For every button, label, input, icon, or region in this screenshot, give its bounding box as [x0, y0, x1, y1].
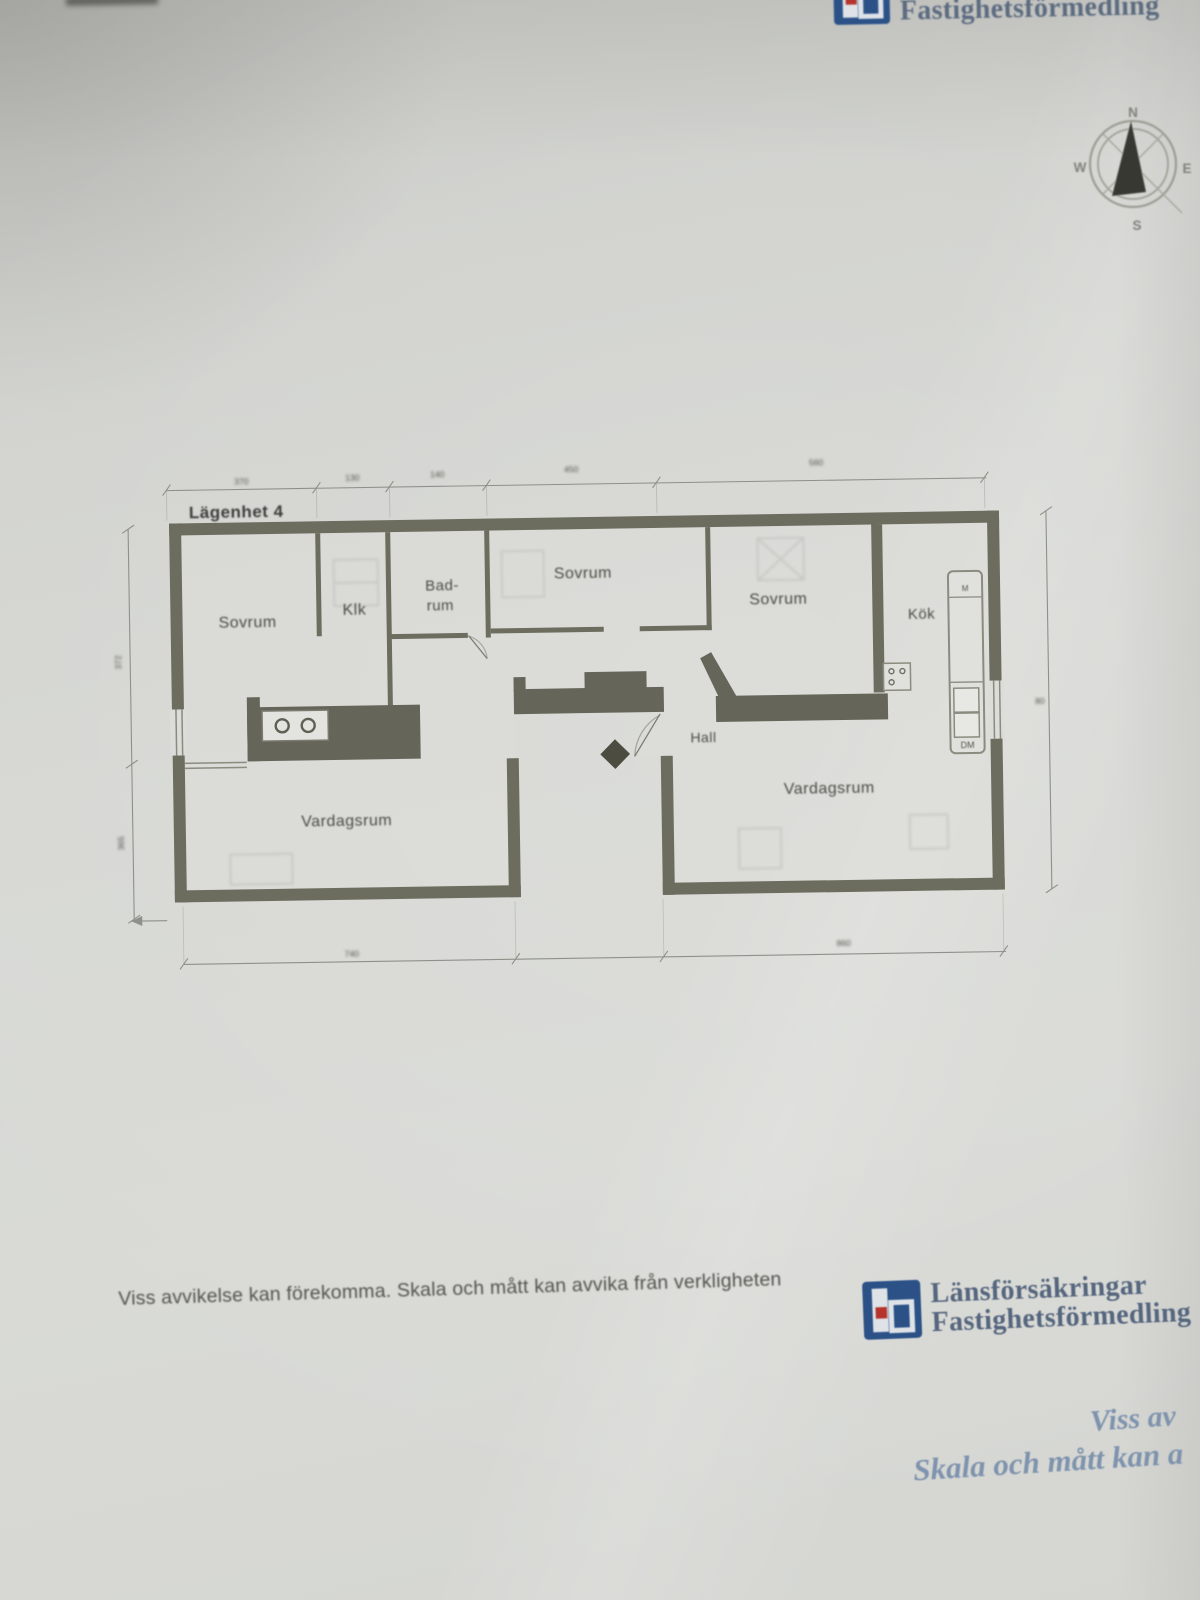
dim-bottom-2: 860	[837, 938, 852, 948]
scanned-floorplan-page: Länsförsäkringar Fastighetsförmedling N …	[0, 0, 1200, 1600]
room-label-hall: Hall	[690, 729, 716, 745]
dim-top-2: 130	[345, 473, 360, 483]
compass-north-label: N	[1128, 105, 1138, 120]
dim-bottom-1: 740	[345, 949, 360, 959]
opening-line-1	[185, 762, 247, 763]
room-label-vardagsrum-right: Vardagsrum	[784, 780, 875, 798]
stove-right	[883, 663, 910, 690]
lansforsakringar-logo-icon	[862, 1280, 922, 1340]
dishwasher-label: DM	[961, 740, 975, 750]
dim-line-right	[1046, 511, 1052, 889]
compass-rose: N W E S	[1074, 105, 1192, 233]
footer-logo-text: Länsförsäkringar Fastighetsförmedling	[930, 1269, 1192, 1337]
wall-left-lower	[173, 755, 187, 902]
room-label-badrum-1: Bad-	[425, 577, 459, 595]
dim-top-4: 450	[564, 464, 579, 474]
entry-wall-bar	[514, 687, 664, 714]
dim-left-2: 365	[116, 836, 126, 851]
room-label-vardagsrum-left: Vardagsrum	[301, 812, 392, 830]
wall-notch-left	[507, 758, 521, 897]
compass-south-label: S	[1132, 218, 1141, 233]
dim-top-5: 560	[809, 457, 824, 467]
fridge-label: M	[962, 584, 969, 593]
room-label-sovrum-left: Sovrum	[218, 614, 276, 632]
room-label-klk: Klk	[342, 601, 366, 618]
handwritten-note-line1: Viss av	[1089, 1399, 1177, 1439]
room-label-kok: Kök	[908, 606, 936, 623]
footer-logo: Länsförsäkringar Fastighetsförmedling	[862, 1269, 1192, 1340]
sink-basin-2	[954, 713, 979, 737]
wardrobe-bar	[716, 693, 888, 722]
compass-east-label: E	[1182, 161, 1191, 176]
room-label-sovrum-right: Sovrum	[749, 591, 807, 609]
dim-line-top	[167, 478, 987, 491]
dim-left-1: 372	[113, 655, 123, 670]
stove-left	[262, 710, 328, 741]
dim-right-1: 80	[1035, 696, 1045, 706]
compass-west-label: W	[1074, 160, 1087, 175]
dim-line-bottom	[184, 951, 1006, 964]
hall-door-clearing	[636, 712, 663, 756]
dim-line-left	[128, 529, 134, 919]
wall-right-lower	[991, 739, 1005, 890]
floorplan-drawing: N W E S	[0, 0, 1200, 1600]
dim-top-1: 370	[234, 476, 249, 486]
room-label-sovrum-mid: Sovrum	[554, 565, 612, 583]
opening-line-2	[185, 767, 247, 768]
dim-top-3: 140	[430, 469, 445, 479]
sink-basin-1	[954, 688, 979, 712]
entry-wall-stub	[513, 677, 525, 691]
entry-wall-bump	[584, 671, 646, 689]
wall-notch-right	[661, 756, 675, 895]
plan-title: Lägenhet 4	[189, 502, 284, 522]
column-dot	[600, 739, 630, 769]
room-label-badrum-2: rum	[427, 597, 455, 614]
